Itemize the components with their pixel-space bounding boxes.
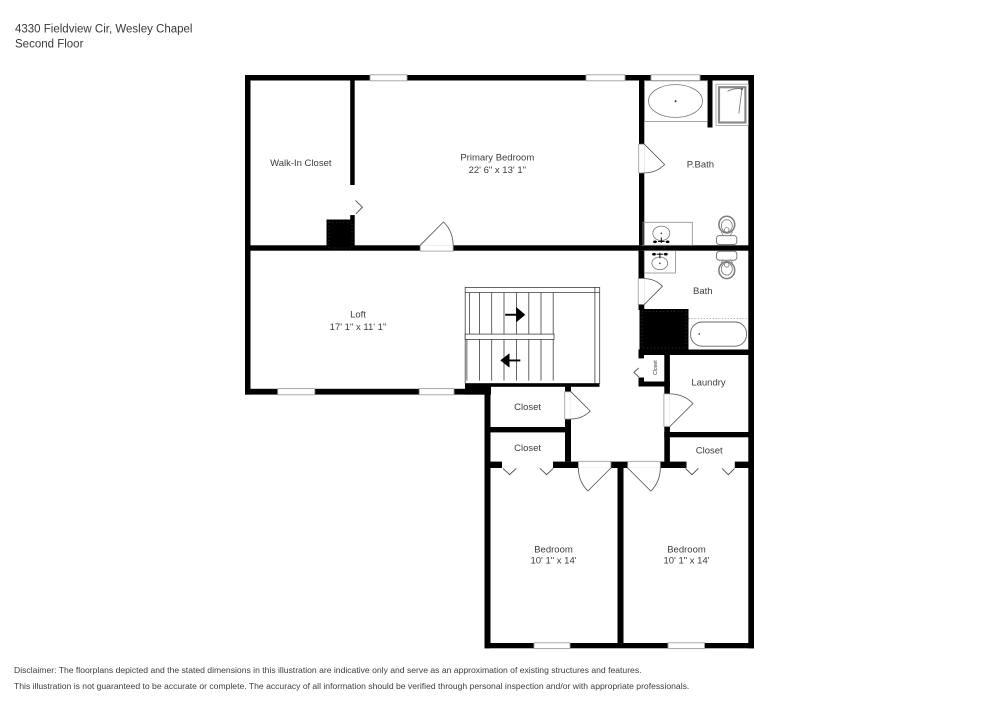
svg-text:Laundry: Laundry bbox=[691, 378, 726, 389]
svg-text:This illustration is not guara: This illustration is not guaranteed to b… bbox=[14, 681, 689, 691]
svg-text:Walk-In Closet: Walk-In Closet bbox=[270, 158, 332, 169]
svg-text:Closet: Closet bbox=[653, 360, 659, 375]
svg-text:Closet: Closet bbox=[514, 443, 541, 454]
svg-text:P.Bath: P.Bath bbox=[687, 160, 714, 171]
svg-text:17' 1" x 11' 1": 17' 1" x 11' 1" bbox=[330, 322, 387, 333]
svg-text:10' 1" x 14': 10' 1" x 14' bbox=[663, 556, 709, 567]
svg-text:Primary Bedroom: Primary Bedroom bbox=[460, 152, 534, 163]
svg-text:Closet: Closet bbox=[514, 402, 541, 413]
svg-text:Second Floor: Second Floor bbox=[15, 39, 84, 51]
svg-text:10' 1" x 14': 10' 1" x 14' bbox=[530, 556, 576, 567]
svg-text:Bedroom: Bedroom bbox=[534, 544, 573, 555]
svg-text:22' 6" x 13' 1": 22' 6" x 13' 1" bbox=[469, 165, 526, 176]
svg-text:Loft: Loft bbox=[350, 310, 366, 321]
svg-text:Closet: Closet bbox=[696, 446, 723, 457]
svg-text:Bath: Bath bbox=[693, 286, 713, 297]
svg-text:Bedroom: Bedroom bbox=[667, 544, 706, 555]
svg-text:Disclaimer: The floorplans dep: Disclaimer: The floorplans depicted and … bbox=[14, 665, 642, 675]
svg-text:4330 Fieldview Cir, Wesley Cha: 4330 Fieldview Cir, Wesley Chapel bbox=[15, 24, 192, 36]
